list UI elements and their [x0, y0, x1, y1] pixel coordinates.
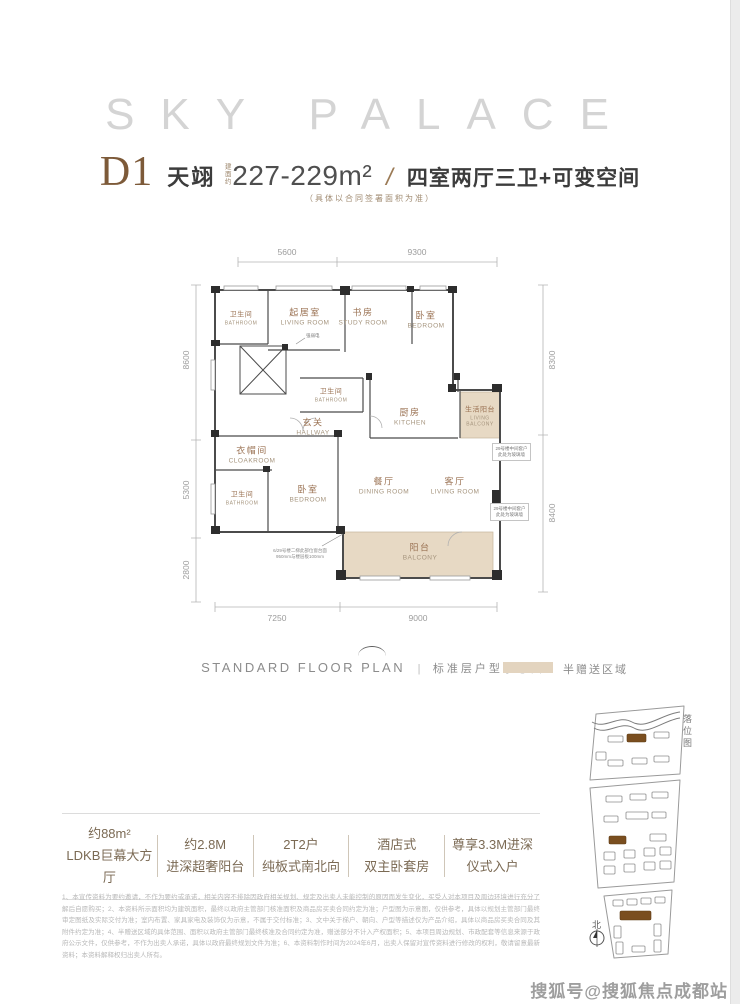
- room-balcony: 阳台 BALCONY: [403, 541, 438, 562]
- room-cn: 客厅: [431, 475, 480, 488]
- room-bathroom-bottom: 卫生间 BATHROOM: [226, 490, 259, 507]
- dim-bottom-2: 9000: [409, 613, 428, 623]
- dim-top-2: 9300: [408, 247, 427, 257]
- separator-slash: /: [386, 164, 393, 192]
- unit-area: 227-229m²: [232, 160, 372, 192]
- side-note-2: 29号楼中间套户 此处为玻璃墙: [490, 503, 529, 521]
- side-note-1-line2: 此处为玻璃墙: [493, 452, 530, 458]
- area-disclaimer-note: （具体以合同签署面积为准）: [0, 193, 740, 204]
- side-note-2-line2: 此处为玻璃墙: [491, 512, 528, 518]
- room-living-top: 起居室 LIVING ROOM: [281, 306, 330, 327]
- legend-label: 半赠送区域: [563, 661, 628, 677]
- room-cn: 卫生间: [315, 387, 348, 397]
- room-cn: 厨房: [394, 406, 426, 419]
- dim-right-1: 8300: [547, 351, 557, 370]
- window-sill-note: 6/29号楼二梯此部位窗台面 950mm与楼层板100mm: [273, 548, 327, 560]
- unit-header: D1 天翊 建面约 227-229m² / 四室两厅三卫+可变空间: [0, 148, 740, 196]
- unit-code: D1: [100, 148, 153, 196]
- feature-line1: 约2.8M: [158, 834, 253, 856]
- feature-item: 酒店式 双主卧套房: [349, 834, 444, 878]
- room-bathroom-top: 卫生间 BATHROOM: [225, 310, 258, 327]
- room-cn: 卫生间: [226, 490, 259, 500]
- room-study: 书房 STUDY ROOM: [339, 306, 388, 327]
- feature-item: 尊享3.3M进深 仪式入户: [445, 834, 540, 878]
- compass-north-icon: 北: [592, 918, 601, 931]
- legend-swatch: [503, 662, 553, 673]
- room-living-balcony: 生活阳台 LIVING BALCONY: [461, 405, 499, 428]
- room-en: STUDY ROOM: [339, 320, 388, 327]
- dim-bottom-1: 7250: [268, 613, 287, 623]
- room-cn: 卧室: [407, 309, 444, 322]
- brand-title: SKY PALACE: [0, 90, 740, 140]
- feature-line2: 双主卧套房: [349, 856, 444, 878]
- site-plan-drawing: [580, 700, 730, 965]
- room-bedroom-top: 卧室 BEDROOM: [407, 309, 444, 330]
- dim-left-3: 2800: [181, 561, 191, 580]
- room-en: KITCHEN: [394, 420, 426, 427]
- feature-line1: 尊享3.3M进深: [445, 834, 540, 856]
- room-kitchen: 厨房 KITCHEN: [394, 406, 426, 427]
- room-en: CLOAKROOM: [229, 458, 276, 465]
- caption-arc-ornament: [358, 646, 386, 656]
- room-bathroom-mid: 卫生间 BATHROOM: [315, 387, 348, 404]
- room-cloakroom: 衣帽间 CLOAKROOM: [229, 444, 276, 465]
- room-en: BATHROOM: [226, 501, 259, 507]
- shaft-annotation: 强弱电: [306, 333, 320, 339]
- caption-divider: |: [418, 663, 421, 675]
- dim-top-1: 5600: [278, 247, 297, 257]
- room-en: HALLWAY: [296, 430, 329, 437]
- window-sill-note-line2: 950mm与楼层板100mm: [273, 554, 327, 560]
- feature-item: 2T2户 纯板式南北向: [254, 834, 349, 878]
- unit-layout: 四室两厅三卫+可变空间: [407, 162, 640, 192]
- room-en: BATHROOM: [225, 321, 258, 327]
- feature-line2: 进深超奢阳台: [158, 856, 253, 878]
- room-en: LIVING ROOM: [431, 489, 480, 496]
- feature-line2: 纯板式南北向: [254, 856, 349, 878]
- room-living-bottom: 客厅 LIVING ROOM: [431, 475, 480, 496]
- floor-plan: 5600 9300 8600 5300 2800 8300 8400 7250 …: [0, 240, 740, 640]
- dim-left-1: 8600: [181, 351, 191, 370]
- room-cn: 生活阳台: [461, 405, 499, 415]
- room-en: LIVING BALCONY: [461, 416, 499, 428]
- feature-line1: 酒店式: [349, 834, 444, 856]
- feature-line1: 2T2户: [254, 834, 349, 856]
- room-dining: 餐厅 DINING ROOM: [359, 475, 409, 496]
- floor-plan-linework: [0, 240, 740, 640]
- site-plan: 落位图 北: [580, 700, 730, 965]
- room-en: BEDROOM: [407, 323, 444, 330]
- feature-item: 约88m² LDKB巨幕大方厅: [62, 823, 157, 889]
- room-cn: 玄关: [296, 416, 329, 429]
- room-cn: 书房: [339, 306, 388, 319]
- room-cn: 卫生间: [225, 310, 258, 320]
- unit-name: 天翊: [167, 160, 215, 192]
- room-cn: 阳台: [403, 541, 438, 554]
- room-bedroom-bottom: 卧室 BEDROOM: [289, 483, 326, 504]
- feature-line2: 仪式入户: [445, 856, 540, 878]
- feature-line1: 约88m²: [62, 823, 157, 845]
- room-cn: 卧室: [289, 483, 326, 496]
- room-en: BALCONY: [403, 555, 438, 562]
- room-cn: 餐厅: [359, 475, 409, 488]
- watermark: 搜狐号@搜狐焦点成都站: [530, 977, 728, 1002]
- plan-caption: STANDARD FLOOR PLAN | 标准层户型示意图 半赠送区域: [0, 643, 740, 683]
- room-en: LIVING ROOM: [281, 320, 330, 327]
- side-note-1: 29号楼中间套户 此处为玻璃墙: [492, 443, 531, 461]
- area-prefix: 建面约: [221, 163, 231, 186]
- room-hallway: 玄关 HALLWAY: [296, 416, 329, 437]
- room-en: BEDROOM: [289, 497, 326, 504]
- site-plan-label: 落位图: [681, 714, 694, 750]
- feature-line2: LDKB巨幕大方厅: [62, 845, 157, 889]
- feature-list: 约88m² LDKB巨幕大方厅 约2.8M 进深超奢阳台 2T2户 纯板式南北向…: [62, 813, 540, 900]
- room-en: DINING ROOM: [359, 489, 409, 496]
- right-edge-strip: [730, 0, 740, 1004]
- dim-left-2: 5300: [181, 481, 191, 500]
- dim-right-2: 8400: [547, 504, 557, 523]
- room-en: BATHROOM: [315, 398, 348, 404]
- disclaimer-text: 1、本宣传资料为要约邀请，不作为要约或承诺，相关内容不排除因政府相关规划、规定及…: [62, 892, 540, 961]
- caption-en: STANDARD FLOOR PLAN: [201, 660, 405, 675]
- feature-item: 约2.8M 进深超奢阳台: [158, 834, 253, 878]
- room-cn: 衣帽间: [229, 444, 276, 457]
- room-cn: 起居室: [281, 306, 330, 319]
